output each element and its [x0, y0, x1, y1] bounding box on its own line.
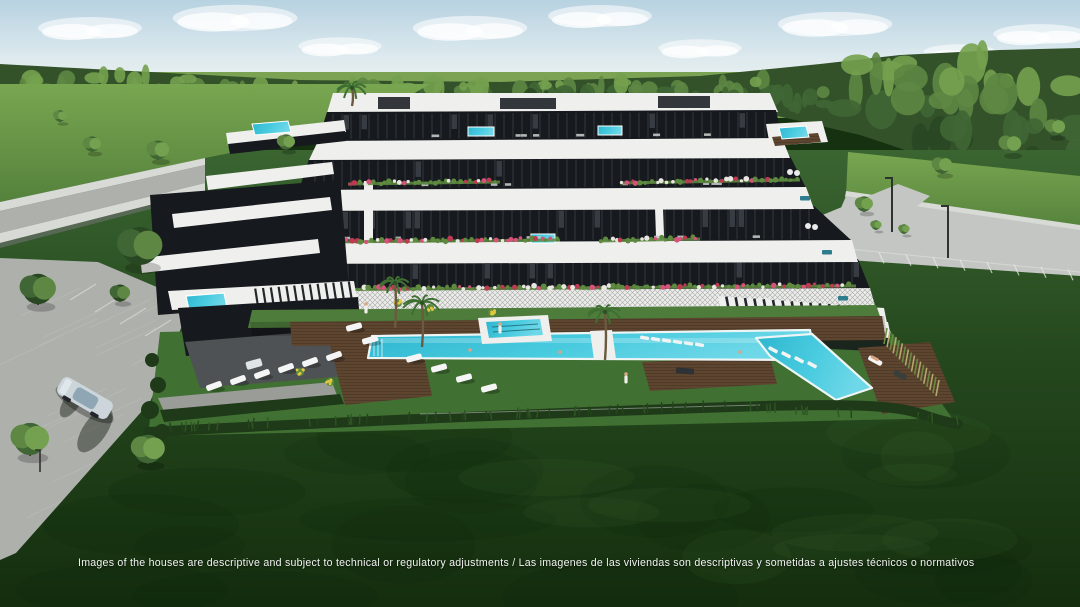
rooftop-terrace-right [766, 121, 828, 146]
disclaimer-text: Images of the houses are descriptive and… [78, 557, 1068, 569]
spa-platform [478, 315, 552, 344]
architectural-render [0, 0, 1080, 607]
render-viewport: Images of the houses are descriptive and… [0, 0, 1080, 607]
bench [676, 367, 694, 374]
pool-bridge [590, 330, 616, 360]
